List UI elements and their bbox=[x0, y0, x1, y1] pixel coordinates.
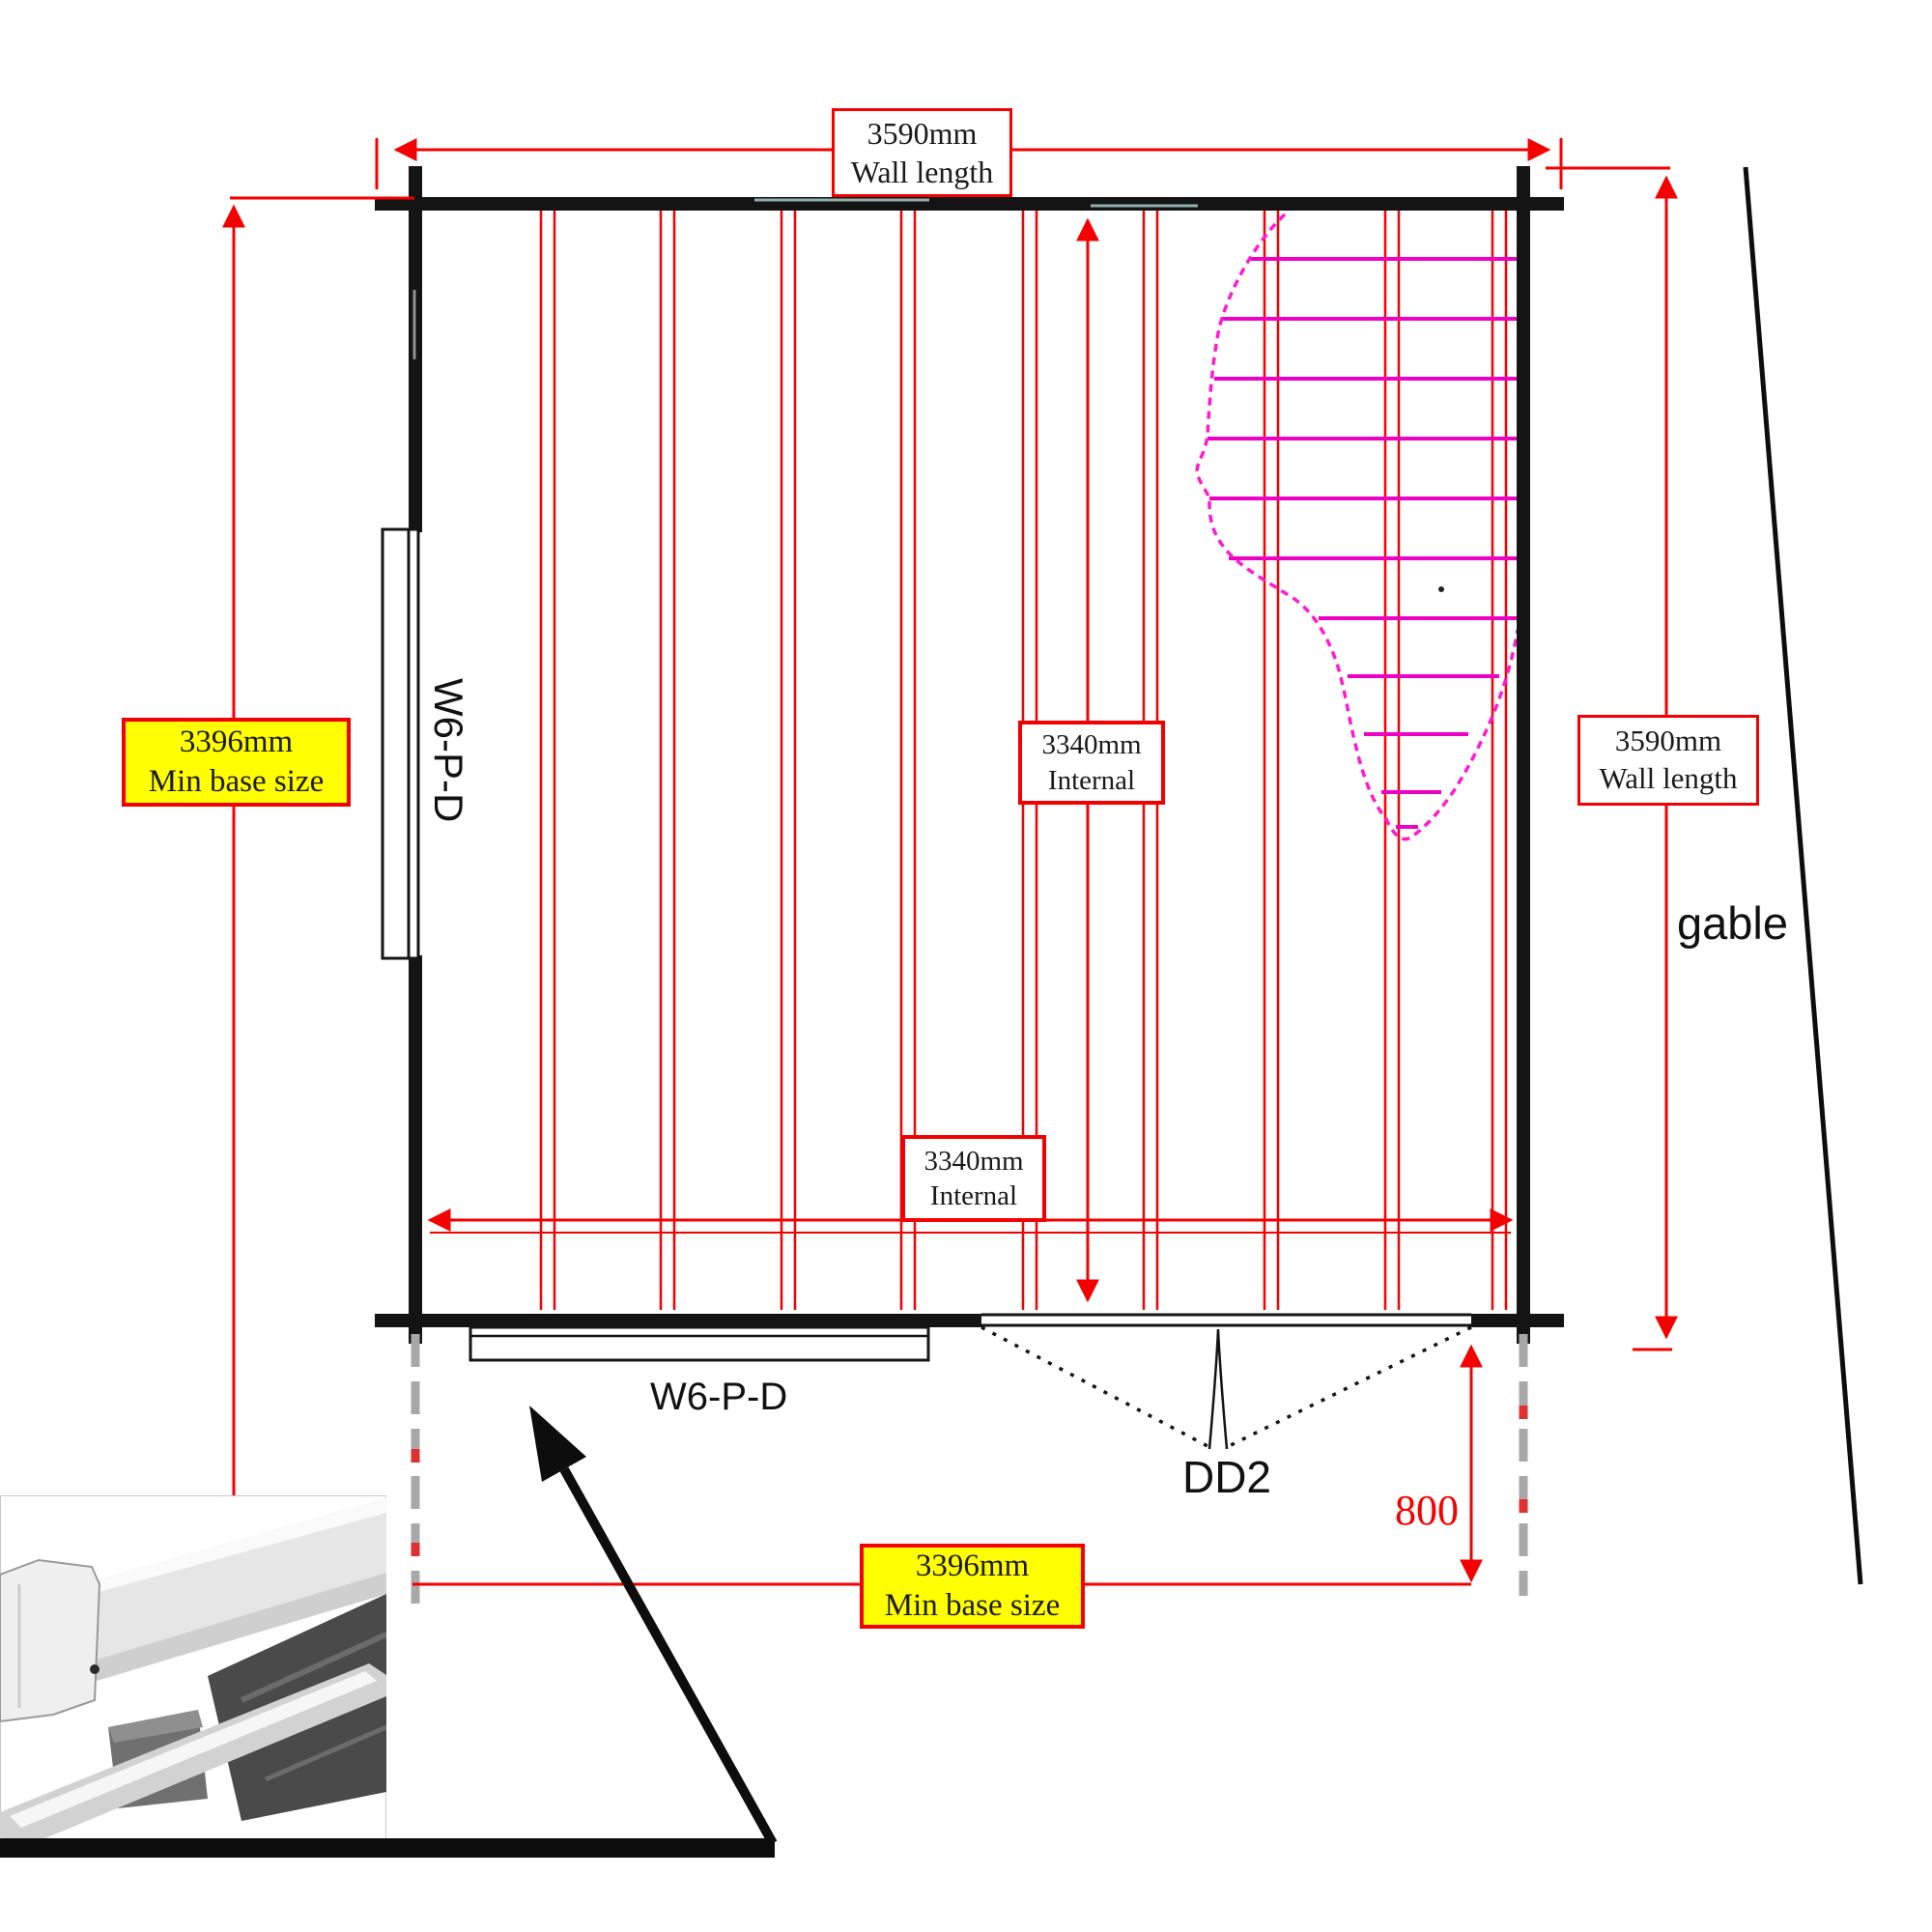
dim-bottom-min-base: 3396mm Min base size bbox=[860, 1544, 1085, 1629]
bottom-window-label: W6-P-D bbox=[650, 1376, 787, 1419]
plan-drawing bbox=[0, 0, 1932, 1932]
dim-800-label: 800 bbox=[1343, 1486, 1459, 1535]
double-door bbox=[981, 1327, 1471, 1449]
dim-left-min-base: 3396mm Min base size bbox=[122, 718, 351, 807]
gable-line bbox=[1746, 167, 1861, 1584]
left-window bbox=[383, 529, 418, 958]
dim-internal-horizontal: 3340mm Internal bbox=[901, 1135, 1046, 1222]
left-window-label: W6-P-D bbox=[425, 678, 471, 822]
dim-right-wall-length: 3590mm Wall length bbox=[1577, 715, 1759, 806]
hatched-region bbox=[1197, 214, 1518, 839]
floor-plan-page: 3590mm Wall length 3396mm Min base size … bbox=[0, 0, 1932, 1932]
double-door-label: DD2 bbox=[1164, 1451, 1290, 1503]
dimension-lines bbox=[230, 138, 1672, 1584]
plan-dot bbox=[1438, 586, 1444, 592]
dim-internal-vertical: 3340mm Internal bbox=[1018, 721, 1165, 805]
dim-top-wall-length: 3590mm Wall length bbox=[832, 108, 1012, 197]
hatched-region-outline bbox=[1197, 214, 1518, 839]
foundation-photo bbox=[0, 1495, 386, 1845]
bottom-window bbox=[470, 1327, 928, 1360]
gable-label: gable bbox=[1677, 896, 1788, 950]
